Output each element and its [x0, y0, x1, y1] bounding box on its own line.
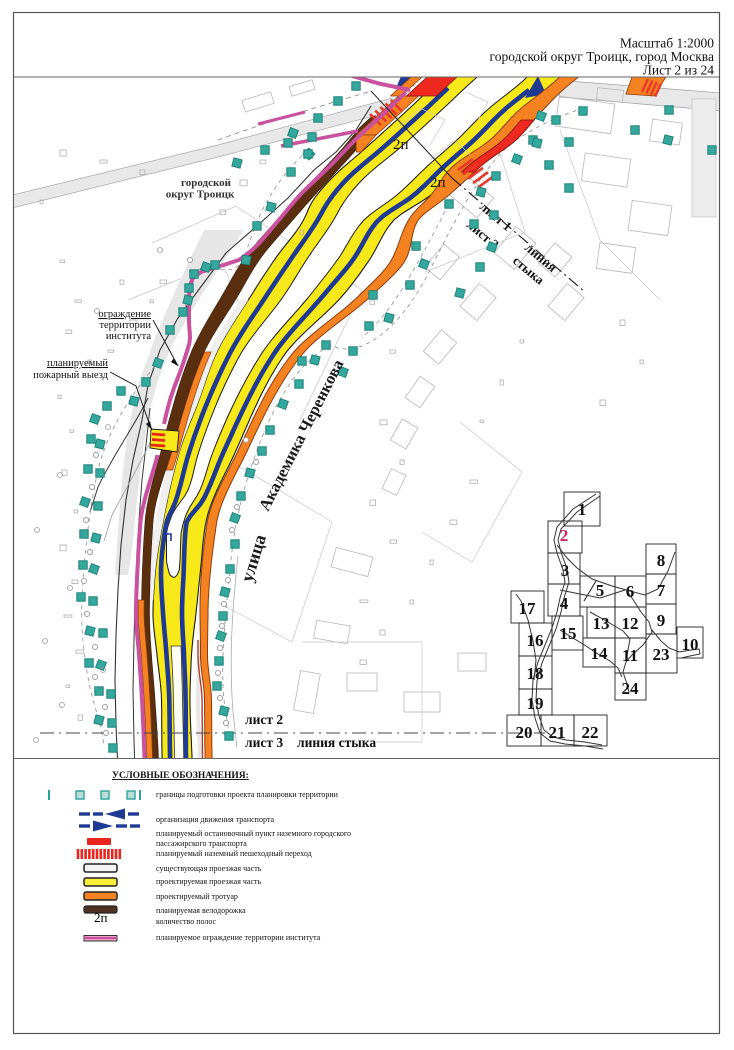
svg-text:существующая проезжая часть: существующая проезжая часть	[156, 864, 262, 873]
svg-text:20: 20	[516, 723, 533, 742]
svg-text:3: 3	[561, 561, 570, 580]
svg-text:института: института	[106, 331, 152, 342]
svg-text:11: 11	[622, 646, 638, 665]
svg-text:23: 23	[653, 645, 670, 664]
svg-text:12: 12	[622, 614, 639, 633]
svg-text:пожарный выезд: пожарный выезд	[33, 370, 108, 381]
svg-text:планируемая велодорожка: планируемая велодорожка	[156, 906, 246, 915]
svg-text:границы подготовки проекта пла: границы подготовки проекта планировки те…	[156, 790, 339, 799]
svg-text:14: 14	[591, 644, 609, 663]
svg-text:17: 17	[519, 599, 537, 618]
svg-text:округ Троицк: округ Троицк	[166, 189, 235, 201]
svg-text:4: 4	[560, 594, 569, 613]
svg-text:планируемое ограждение террито: планируемое ограждение территории инстит…	[156, 933, 321, 942]
svg-text:2п: 2п	[430, 175, 446, 191]
svg-text:15: 15	[560, 624, 577, 643]
svg-text:УСЛОВНЫЕ ОБОЗНАЧЕНИЯ:: УСЛОВНЫЕ ОБОЗНАЧЕНИЯ:	[112, 771, 249, 781]
svg-text:7: 7	[657, 581, 666, 600]
svg-text:21: 21	[549, 723, 566, 742]
svg-text:организация движения транспорт: организация движения транспорта	[156, 815, 274, 824]
svg-text:10: 10	[682, 635, 699, 654]
svg-text:линия стыка: линия стыка	[297, 735, 376, 750]
svg-text:планируемый: планируемый	[47, 358, 108, 369]
svg-text:19: 19	[527, 694, 544, 713]
svg-text:5: 5	[596, 581, 605, 600]
svg-text:планируемый остановочный пункт: планируемый остановочный пункт наземного…	[156, 829, 351, 838]
svg-text:8: 8	[657, 551, 666, 570]
svg-text:ограждение: ограждение	[98, 309, 151, 320]
svg-text:лист 3: лист 3	[245, 735, 283, 750]
svg-text:территории: территории	[99, 320, 151, 331]
svg-text:2п: 2п	[393, 137, 409, 153]
svg-text:проектируемый тротуар: проектируемый тротуар	[156, 892, 238, 901]
svg-text:18: 18	[527, 664, 544, 683]
svg-text:6: 6	[626, 582, 635, 601]
svg-text:9: 9	[657, 611, 666, 630]
svg-text:пассажирского транспорта: пассажирского транспорта	[156, 839, 247, 848]
svg-text:городской: городской	[181, 177, 232, 189]
svg-text:1: 1	[578, 500, 587, 519]
svg-text:22: 22	[582, 723, 599, 742]
svg-text:2п: 2п	[94, 910, 108, 925]
svg-text:количество полос: количество полос	[156, 917, 217, 926]
svg-text:13: 13	[593, 614, 610, 633]
svg-text:24: 24	[622, 679, 640, 698]
svg-text:планируемый наземный пешеходны: планируемый наземный пешеходный переход	[156, 849, 312, 858]
svg-text:2: 2	[560, 526, 569, 545]
svg-text:16: 16	[527, 631, 544, 650]
svg-text:лист 2: лист 2	[245, 712, 283, 727]
svg-text:проектируемая проезжая часть: проектируемая проезжая часть	[156, 877, 261, 886]
svg-text:Лист 2 из 24: Лист 2 из 24	[643, 63, 714, 78]
